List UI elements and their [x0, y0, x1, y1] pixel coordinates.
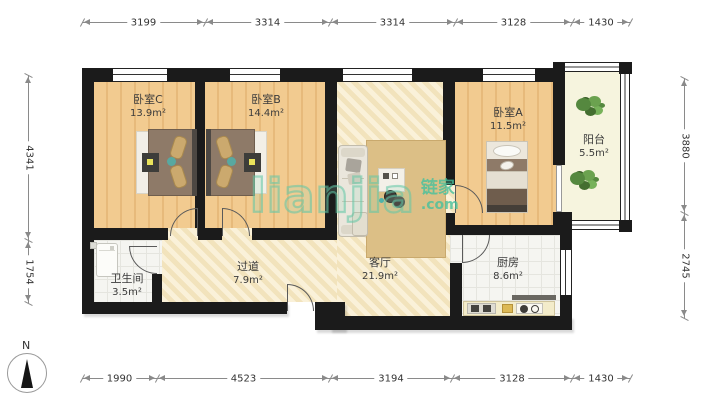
rug: [366, 140, 446, 258]
pillow: [167, 157, 176, 166]
lamp-icon: [147, 159, 153, 165]
counter-appliance: [502, 304, 513, 313]
plant-icon: [566, 164, 602, 198]
table-decor: [383, 173, 389, 179]
washer-knob: [110, 246, 114, 250]
pillow: [347, 172, 362, 185]
pillow: [493, 145, 521, 157]
room-name: 卧室B: [231, 93, 301, 107]
bed-blanket: [487, 189, 527, 205]
room-label-bedroom-b: 卧室B 14.4m²: [231, 93, 301, 120]
burner: [520, 305, 528, 313]
room-area: 7.9m²: [213, 274, 283, 287]
north-label: N: [22, 339, 30, 352]
bed-headboard: [192, 129, 197, 196]
wall: [330, 316, 572, 330]
sofa-cushion-seam: [342, 201, 364, 202]
room-name: 卧室C: [113, 93, 183, 107]
window: [483, 68, 535, 82]
pillow: [345, 158, 362, 173]
dimension-bottom-3: 3194: [330, 378, 452, 379]
wall: [619, 220, 632, 232]
room-label-balcony: 阳台 5.5m²: [559, 133, 629, 160]
door-leaf: [455, 185, 456, 213]
wall: [619, 62, 632, 74]
room-name: 阳台: [559, 133, 629, 147]
wall: [252, 228, 337, 240]
window: [560, 250, 572, 295]
room-label-kitchen: 厨房 8.6m²: [473, 256, 543, 283]
room-name: 客厅: [345, 256, 415, 270]
room-name: 厨房: [473, 256, 543, 270]
door-leaf: [197, 208, 198, 236]
table-decor: [393, 196, 405, 208]
door-leaf: [129, 246, 157, 247]
sink-basin: [483, 305, 491, 312]
room-label-hallway: 过道 7.9m²: [213, 260, 283, 287]
dimension-left-1: 4341: [28, 75, 29, 240]
bed-headboard: [206, 129, 211, 196]
north-arrow-icon: [21, 359, 33, 388]
coffee-table-icon: [378, 168, 405, 192]
washer-panel: [99, 250, 115, 251]
room-area: 13.9m²: [113, 107, 183, 120]
dimension-left-2: 1754: [28, 240, 29, 303]
door-leaf: [287, 284, 288, 311]
room-label-bedroom-a: 卧室A 11.5m²: [473, 106, 543, 133]
window: [113, 68, 167, 82]
room-label-bedroom-c: 卧室C 13.9m²: [113, 93, 183, 120]
room-area: 5.5m²: [559, 147, 629, 160]
room-label-bathroom: 卫生间 3.5m²: [92, 272, 162, 299]
table-decor: [392, 173, 398, 179]
pillow: [227, 157, 236, 166]
dimension-top-5: 1430: [572, 22, 630, 23]
door-leaf: [222, 208, 223, 236]
bed-icon: [206, 129, 267, 196]
burner: [531, 305, 539, 313]
wall: [560, 295, 572, 330]
room-area: 3.5m²: [92, 286, 162, 299]
sink-basin: [471, 305, 479, 312]
kitchen-counter: [463, 301, 555, 316]
wall: [82, 228, 168, 240]
table-decor: [379, 198, 384, 203]
dimension-bottom-2: 4523: [157, 378, 330, 379]
wall: [82, 302, 287, 314]
dimension-right-1: 3880: [684, 78, 685, 213]
room-label-living: 客厅 21.9m²: [345, 256, 415, 283]
stove-icon: [516, 303, 543, 314]
room-area: 8.6m²: [473, 270, 543, 283]
dimension-right-2: 2745: [684, 213, 685, 318]
wall: [450, 263, 462, 316]
dimension-bottom-4: 3128: [452, 378, 572, 379]
room-name: 过道: [213, 260, 283, 274]
balcony-slider: [556, 165, 562, 212]
sofa-armrest: [341, 148, 365, 157]
plant-icon: [572, 90, 608, 124]
bed-tray: [244, 153, 261, 172]
kitchen-sill: [512, 295, 556, 300]
bed-sheet: [487, 171, 527, 189]
balcony-window-top: [560, 62, 622, 72]
lamp-icon: [249, 159, 255, 165]
ottoman-icon: [352, 212, 368, 236]
sink-icon: [467, 303, 496, 314]
dimension-top-2: 3314: [205, 22, 330, 23]
wall: [553, 212, 572, 232]
room-name: 卧室A: [473, 106, 543, 120]
bed-icon: [136, 129, 197, 196]
dimension-top-1: 3199: [82, 22, 205, 23]
dimension-bottom-1: 1990: [82, 378, 157, 379]
wall: [325, 82, 337, 228]
bed-tray: [142, 153, 159, 172]
door-leaf: [462, 235, 463, 263]
room-area: 14.4m²: [231, 107, 301, 120]
dimension-bottom-5: 1430: [572, 378, 630, 379]
bed-icon: [486, 141, 528, 213]
floor-plan-canvas: 3199 3314 3314 3128 1430 1990 4523 3194 …: [0, 0, 710, 400]
wall: [198, 228, 222, 240]
room-name: 卫生间: [92, 272, 162, 286]
window: [230, 68, 280, 82]
bed-bench: [487, 205, 527, 212]
room-area: 21.9m²: [345, 270, 415, 283]
dimension-top-3: 3314: [330, 22, 455, 23]
window: [343, 68, 412, 82]
dimension-top-4: 3128: [455, 22, 572, 23]
north-compass: [7, 353, 47, 393]
room-area: 11.5m²: [473, 120, 543, 133]
